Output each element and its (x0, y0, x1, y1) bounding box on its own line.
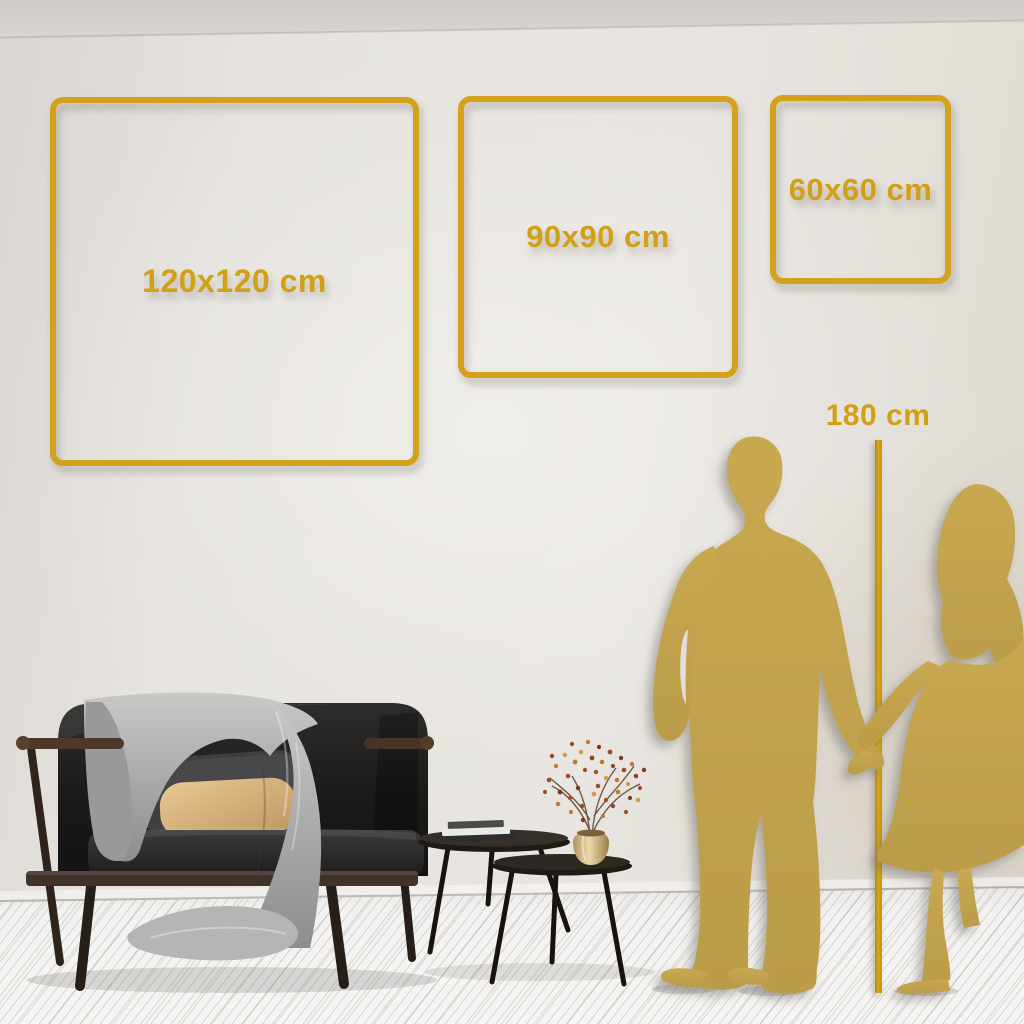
size-frame-60x60: 60x60 cm (770, 95, 951, 284)
height-marker-label: 180 cm (795, 399, 961, 433)
wood-plank-floor (0, 880, 1024, 1024)
size-frame-label-60: 60x60 cm (789, 172, 933, 208)
size-frame-120x120: 120x120 cm (50, 97, 419, 466)
size-frame-label-90: 90x90 cm (526, 219, 670, 255)
height-marker-line (875, 440, 882, 993)
room-mockup-scene: 120x120 cm 90x90 cm 60x60 cm 180 cm (0, 0, 1024, 1024)
size-frame-label-120: 120x120 cm (142, 263, 327, 300)
size-frame-90x90: 90x90 cm (458, 96, 738, 378)
